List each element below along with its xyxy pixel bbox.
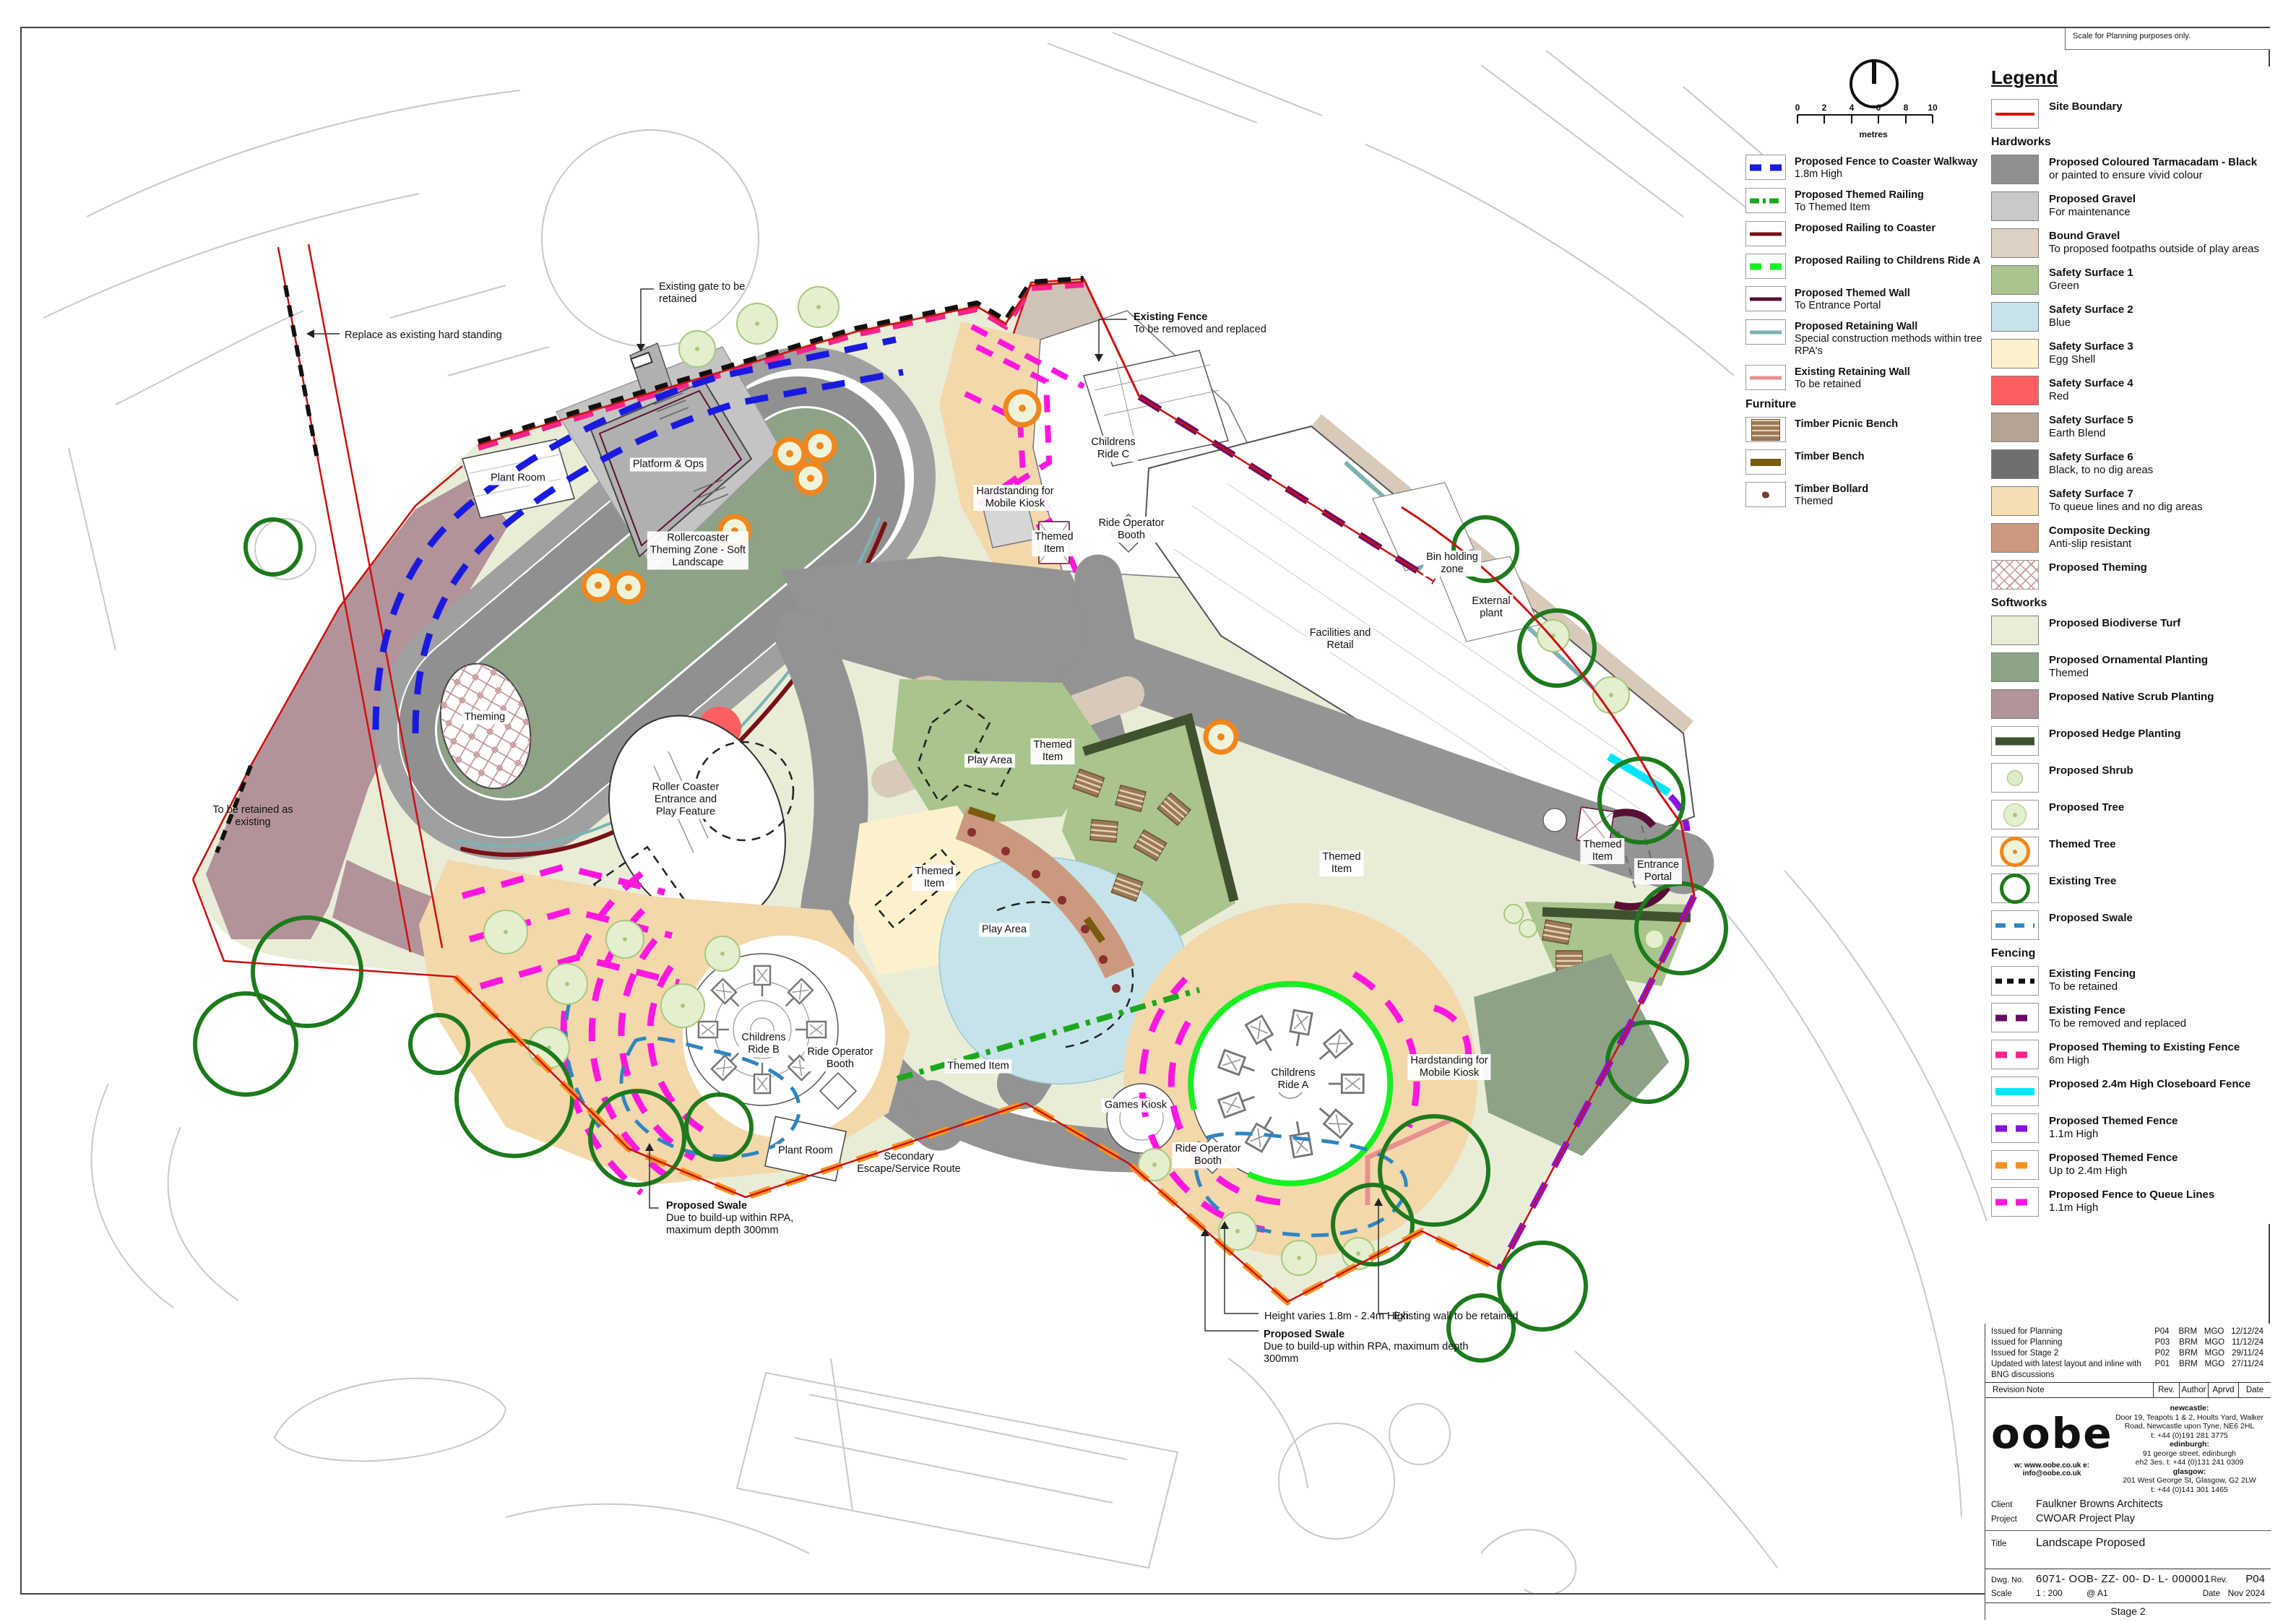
legend-item: Proposed Hedge Planting bbox=[1991, 726, 2274, 756]
legend-swatch bbox=[1991, 560, 2039, 590]
plan-label: Themed Item bbox=[1580, 838, 1624, 864]
legend-swatch bbox=[1991, 1187, 2039, 1217]
legend-item: Safety Surface 6Black, to no dig areas bbox=[1991, 449, 2274, 479]
furniture-heading: Furniture bbox=[1745, 398, 1987, 411]
plan-label: Entrance Portal bbox=[1634, 858, 1682, 884]
hardworks-heading: Hardworks bbox=[1991, 136, 2274, 149]
legend-item: Proposed Themed Fence1.1m High bbox=[1991, 1113, 2274, 1143]
oobe-contact: w: www.oobe.co.uk e: info@oobe.co.uk bbox=[1991, 1462, 2112, 1478]
plan-label: Childrens Ride B bbox=[738, 1031, 788, 1057]
legend-swatch bbox=[1991, 1077, 2039, 1106]
plan-label: To be retained as existing bbox=[210, 803, 295, 829]
key-item: Proposed Fence to Coaster Walkway1.8m Hi… bbox=[1745, 155, 1987, 181]
plan-label: Platform & Ops bbox=[630, 458, 707, 472]
legend-site-boundary: Site Boundary bbox=[1991, 99, 2274, 129]
legend-item: Safety Surface 4Red bbox=[1991, 376, 2274, 405]
legend-swatch bbox=[1991, 837, 2039, 866]
legend-item: Proposed Coloured Tarmacadam - Blackor p… bbox=[1991, 155, 2274, 184]
plan-annotation: Existing FenceTo be removed and replaced bbox=[1131, 311, 1269, 337]
revision-row: Updated with latest layout and inline wi… bbox=[1991, 1359, 2266, 1381]
key-item: Proposed Retaining WallSpecial construct… bbox=[1745, 319, 1987, 358]
plan-label: Bin holding zone bbox=[1423, 551, 1481, 577]
legend-item: Existing FenceTo be removed and replaced bbox=[1991, 1003, 2274, 1032]
key-swatch bbox=[1745, 365, 1786, 390]
address-line: Door 19, Teapots 1 & 2, Hoults Yard, Wal… bbox=[2112, 1413, 2266, 1423]
plan-annotation: Existing wall to be retained bbox=[1391, 1310, 1522, 1324]
plan-label: Facilities and Retail bbox=[1307, 626, 1374, 652]
plan-annotation: Replace as existing hard standing bbox=[342, 329, 505, 342]
legend-swatch bbox=[1991, 339, 2039, 368]
scale-note: Scale for Planning purposes only. bbox=[2065, 28, 2270, 50]
legend-item: Proposed Fence to Queue Lines1.1m High bbox=[1991, 1187, 2274, 1217]
legend-item: Proposed Native Scrub Planting bbox=[1991, 689, 2274, 719]
furniture-item: Timber Bench bbox=[1745, 449, 1987, 475]
plan-label: Themed Item bbox=[1030, 738, 1074, 764]
project-name: CWOAR Project Play bbox=[2036, 1513, 2135, 1524]
address-line: t: +44 (0)191 281 3775 bbox=[2112, 1431, 2266, 1441]
legend-item: Themed Tree bbox=[1991, 837, 2274, 866]
legend-swatch bbox=[1991, 449, 2039, 479]
address-line: eh2 3es. t: +44 (0)131 241 0309 bbox=[2112, 1458, 2266, 1467]
key-walls-railings: Proposed Fence to Coaster Walkway1.8m Hi… bbox=[1745, 155, 1987, 515]
legend-panel: Legend Site Boundary Hardworks Proposed … bbox=[1991, 66, 2274, 1224]
legend-swatch bbox=[1991, 763, 2039, 793]
title-block: Issued for Planning P04 BRM MGO 12/12/24… bbox=[1985, 1324, 2271, 1620]
legend-swatch bbox=[1991, 1040, 2039, 1069]
legend-item: Proposed Swale bbox=[1991, 910, 2274, 940]
legend-swatch bbox=[1991, 376, 2039, 405]
revision-header: Revision Note Rev. Author Aprvd Date bbox=[1985, 1382, 2271, 1398]
key-item: Proposed Railing to Childrens Ride A bbox=[1745, 254, 1987, 279]
key-item: Proposed Railing to Coaster bbox=[1745, 221, 1987, 246]
legend-title: Legend bbox=[1991, 66, 2274, 89]
fencing-heading: Fencing bbox=[1991, 947, 2274, 960]
plan-label: Play Area bbox=[979, 923, 1030, 937]
key-swatch bbox=[1745, 155, 1786, 180]
furniture-swatch bbox=[1745, 482, 1786, 507]
drawing-number: 6071- OOB- ZZ- 00- D- L- 000001 bbox=[2036, 1573, 2210, 1585]
plan-label: Roller Coaster Entrance and Play Feature bbox=[649, 781, 722, 819]
legend-swatch bbox=[1991, 1003, 2039, 1032]
legend-item: Existing FencingTo be retained bbox=[1991, 966, 2274, 996]
furniture-item: Timber BollardThemed bbox=[1745, 482, 1987, 508]
plan-annotation: Height varies 1.8m - 2.4m High bbox=[1261, 1310, 1412, 1324]
key-swatch bbox=[1745, 254, 1786, 279]
legend-item: Safety Surface 1Green bbox=[1991, 265, 2274, 295]
revision-table: Issued for Planning P04 BRM MGO 12/12/24… bbox=[1985, 1324, 2271, 1382]
key-swatch bbox=[1745, 319, 1786, 345]
drawing-scale: 1 : 200 bbox=[2036, 1588, 2086, 1598]
plan-label: Themed Item bbox=[1032, 530, 1076, 556]
scalebar-tick: 6 bbox=[1876, 103, 1881, 113]
plan-label: Ride Operator Booth bbox=[804, 1045, 876, 1071]
plan-label: Childrens Ride C bbox=[1088, 436, 1138, 462]
stage-label: Stage 2 bbox=[1985, 1602, 2271, 1620]
scale-bar: 0246810 metres bbox=[1790, 103, 1956, 139]
scalebar-tick: 10 bbox=[1928, 103, 1937, 113]
key-swatch bbox=[1745, 188, 1786, 213]
legend-item: Proposed Tree bbox=[1991, 800, 2274, 829]
plan-label: Games Kiosk bbox=[1102, 1099, 1170, 1113]
plan-annotation: Proposed SwaleDue to build-up within RPA… bbox=[663, 1199, 796, 1238]
key-item: Proposed Themed WallTo Entrance Portal bbox=[1745, 286, 1987, 312]
revision-row: Issued for Planning P04 BRM MGO 12/12/24 bbox=[1991, 1326, 2266, 1337]
client-name: Faulkner Browns Architects bbox=[2036, 1498, 2163, 1510]
plan-label: Plant Room bbox=[775, 1144, 836, 1158]
address-line: edinburgh: bbox=[2112, 1440, 2266, 1449]
legend-item: Proposed Biodiverse Turf bbox=[1991, 616, 2274, 645]
legend-item: Existing Tree bbox=[1991, 873, 2274, 903]
plan-annotation: Proposed SwaleDue to build-up within RPA… bbox=[1261, 1328, 1471, 1366]
address-line: 91 george street, edinburgh bbox=[2112, 1449, 2266, 1459]
legend-swatch bbox=[1991, 873, 2039, 903]
furniture-swatch bbox=[1745, 417, 1786, 442]
plan-label: External plant bbox=[1469, 595, 1513, 621]
legend-item: Proposed Theming bbox=[1991, 560, 2274, 590]
legend-swatch bbox=[1991, 800, 2039, 829]
plan-label: Secondary Escape/Service Route bbox=[854, 1150, 963, 1176]
site-boundary-swatch bbox=[1991, 99, 2039, 129]
plan-label: Play Area bbox=[964, 754, 1015, 768]
legend-swatch bbox=[1991, 1113, 2039, 1143]
legend-swatch bbox=[1991, 726, 2039, 756]
plan-label: Ride Operator Booth bbox=[1172, 1142, 1243, 1168]
legend-swatch bbox=[1991, 616, 2039, 645]
legend-swatch bbox=[1991, 265, 2039, 295]
legend-item: Safety Surface 5Earth Blend bbox=[1991, 413, 2274, 442]
scalebar-tick: 4 bbox=[1850, 103, 1855, 113]
oobe-logo: oobe bbox=[1991, 1412, 2112, 1454]
scalebar-tick: 2 bbox=[1822, 103, 1827, 113]
legend-swatch bbox=[1991, 689, 2039, 719]
plan-label: Rollercoaster Theming Zone - Soft Landsc… bbox=[647, 532, 748, 570]
legend-item: Safety Surface 3Egg Shell bbox=[1991, 339, 2274, 368]
legend-swatch bbox=[1991, 302, 2039, 332]
legend-item: Bound GravelTo proposed footpaths outsid… bbox=[1991, 228, 2274, 258]
legend-swatch bbox=[1991, 966, 2039, 996]
legend-item: Composite DeckingAnti-slip resistant bbox=[1991, 523, 2274, 553]
address-line: Road, Newcastle upon Tyne, NE6 2HL bbox=[2112, 1422, 2266, 1431]
revision-code: P04 bbox=[2227, 1573, 2265, 1585]
drawing-title: Landscape Proposed bbox=[2036, 1537, 2145, 1550]
legend-item: Proposed 2.4m High Closeboard Fence bbox=[1991, 1077, 2274, 1106]
plan-label: Childrens Ride A bbox=[1268, 1066, 1318, 1092]
scalebar-tick: 8 bbox=[1904, 103, 1909, 113]
key-swatch bbox=[1745, 221, 1786, 246]
legend-item: Proposed GravelFor maintenance bbox=[1991, 191, 2274, 221]
legend-swatch bbox=[1991, 910, 2039, 940]
legend-item: Proposed Themed FenceUp to 2.4m High bbox=[1991, 1150, 2274, 1180]
address-line: glasgow: bbox=[2112, 1467, 2266, 1477]
address-line: 201 West George St, Glasgow, G2 2LW bbox=[2112, 1476, 2266, 1485]
drawing-sheet: Scale for Planning purposes only. 024681… bbox=[0, 0, 2296, 1622]
office-addresses: newcastle:Door 19, Teapots 1 & 2, Hoults… bbox=[2112, 1402, 2266, 1494]
softworks-heading: Softworks bbox=[1991, 597, 2274, 610]
legend-swatch bbox=[1991, 228, 2039, 258]
legend-item: Proposed Shrub bbox=[1991, 763, 2274, 793]
plan-label: Themed Item bbox=[1319, 850, 1363, 876]
legend-item: Safety Surface 2Blue bbox=[1991, 302, 2274, 332]
furniture-item: Timber Picnic Bench bbox=[1745, 417, 1987, 442]
legend-swatch bbox=[1991, 523, 2039, 553]
plan-label: Themed Item bbox=[944, 1060, 1011, 1074]
legend-swatch bbox=[1991, 652, 2039, 682]
legend-swatch bbox=[1991, 191, 2039, 221]
plan-label: Ride Operator Booth bbox=[1095, 517, 1167, 543]
scalebar-unit: metres bbox=[1790, 129, 1956, 139]
legend-swatch bbox=[1991, 155, 2039, 184]
drawing-date: Nov 2024 bbox=[2220, 1588, 2265, 1598]
legend-swatch bbox=[1991, 413, 2039, 442]
legend-item: Proposed Ornamental PlantingThemed bbox=[1991, 652, 2274, 682]
legend-item: Proposed Theming to Existing Fence6m Hig… bbox=[1991, 1040, 2274, 1069]
legend-swatch bbox=[1991, 1150, 2039, 1180]
plan-label: Hardstanding for Mobile Kiosk bbox=[1407, 1054, 1490, 1080]
plan-annotation: Existing gate to be retained bbox=[656, 280, 748, 306]
furniture-swatch bbox=[1745, 449, 1786, 475]
plan-label: Theming bbox=[462, 711, 508, 725]
plan-label: Themed Item bbox=[912, 865, 956, 891]
plan-label: Plant Room bbox=[488, 472, 548, 486]
key-item: Existing Retaining WallTo be retained bbox=[1745, 365, 1987, 391]
revision-row: Issued for Stage 2 P02 BRM MGO 29/11/24 bbox=[1991, 1348, 2266, 1359]
address-line: t: +44 (0)141 301 1465 bbox=[2112, 1485, 2266, 1495]
plan-label: Hardstanding for Mobile Kiosk bbox=[973, 485, 1056, 511]
legend-item: Safety Surface 7To queue lines and no di… bbox=[1991, 486, 2274, 516]
scalebar-tick: 0 bbox=[1795, 103, 1800, 113]
legend-swatch bbox=[1991, 486, 2039, 516]
revision-row: Issued for Planning P03 BRM MGO 11/12/24 bbox=[1991, 1337, 2266, 1348]
key-swatch bbox=[1745, 286, 1786, 311]
address-line: newcastle: bbox=[2112, 1404, 2266, 1413]
key-item: Proposed Themed RailingTo Themed Item bbox=[1745, 188, 1987, 214]
